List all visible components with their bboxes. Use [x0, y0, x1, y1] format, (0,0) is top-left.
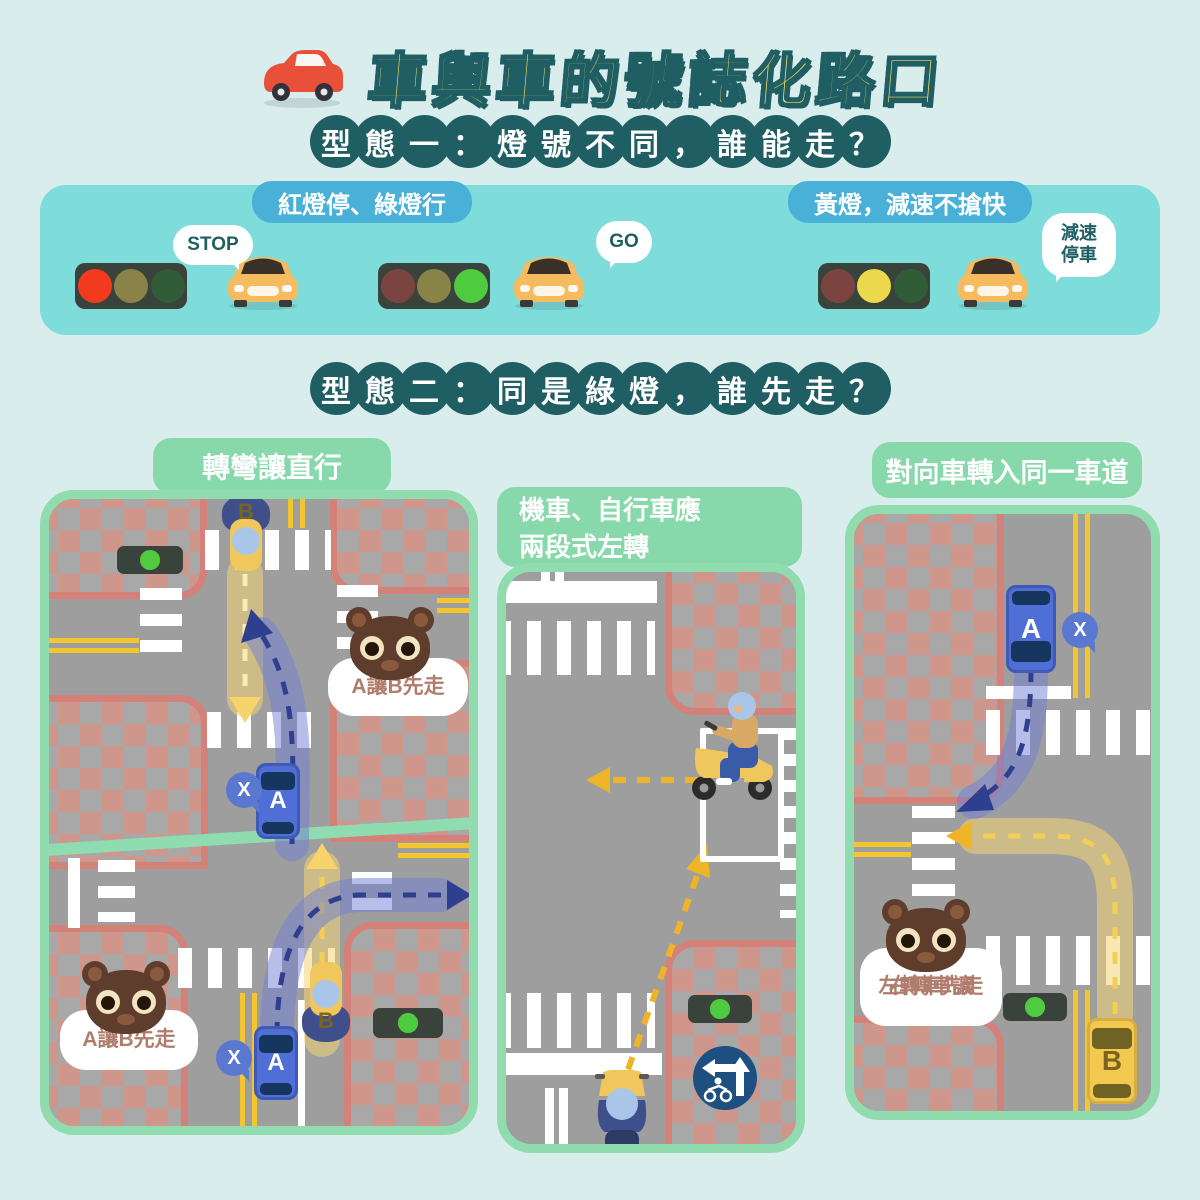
traffic-light-green: [373, 1008, 443, 1038]
traffic-light-red: [75, 263, 187, 309]
car-front-go: [508, 245, 590, 311]
scooter-rider: [676, 690, 784, 802]
heading-type2: 型態二：同是綠燈，誰先走？: [0, 362, 1200, 415]
bear-mascot: [350, 616, 430, 680]
panel-header-turn-yield: 轉彎讓直行: [153, 438, 391, 494]
car-a-label: A: [1006, 585, 1056, 673]
car-front-slow: [952, 245, 1034, 311]
car-a: A: [254, 1026, 298, 1100]
signal-rules-banner: 紅燈停、綠燈行 黃燈，減速不搶快 STOP: [40, 185, 1160, 335]
scooter-b-label: B: [220, 499, 272, 525]
slow-down-bubble: 減速 停車: [1042, 213, 1116, 277]
traffic-light-yellow: [818, 263, 930, 309]
stop-bubble: STOP: [173, 225, 253, 265]
no-go-badge: X: [216, 1040, 252, 1076]
bear-mascot: [886, 908, 966, 972]
infographic-page: 車與車的號誌化路口 型態一：燈號不同，誰能走？ 紅燈停、綠燈行 黃燈，減速不搶快…: [0, 0, 1200, 1200]
two-stage-left-turn-sign: [693, 1046, 757, 1110]
scooter-b-label: B: [300, 1008, 352, 1034]
heading-char: ？: [838, 115, 891, 168]
no-go-badge: X: [1062, 612, 1098, 648]
title-row: 車與車的號誌化路口: [0, 34, 1200, 118]
panel-turn-yield: B A X A讓B先走 A X B A讓B先走: [40, 490, 478, 1135]
car-a-label: A: [254, 1026, 298, 1100]
banner-label-yellow: 黃燈，減速不搶快: [788, 181, 1032, 223]
car-a: A: [1006, 585, 1056, 673]
car-a: A: [256, 763, 300, 839]
go-bubble: GO: [596, 221, 652, 263]
bear-mascot: [86, 970, 166, 1034]
panel-two-stage: [497, 563, 805, 1153]
car-b: B: [1087, 1018, 1137, 1104]
red-car-icon: [254, 41, 349, 111]
heading-char: ？: [838, 362, 891, 415]
banner-label-red-green: 紅燈停、綠燈行: [252, 181, 472, 223]
page-title: 車與車的號誌化路口: [366, 34, 949, 118]
panel-oncoming: A X B 右轉車讓 左轉車先走: [845, 505, 1160, 1120]
traffic-light-green: [378, 263, 490, 309]
traffic-light-green: [688, 995, 752, 1023]
panel-header-two-stage: 機車、自行車應 兩段式左轉: [497, 487, 802, 567]
traffic-light-green: [1003, 993, 1067, 1021]
panel-header-oncoming: 對向車轉入同一車道: [872, 442, 1142, 498]
scooter-rider-rear: [593, 1070, 651, 1153]
heading-type1: 型態一：燈號不同，誰能走？: [0, 115, 1200, 168]
traffic-light-green: [117, 546, 183, 574]
car-b-label: B: [1087, 1018, 1137, 1104]
scooter-b: B: [220, 493, 272, 573]
car-a-label: A: [256, 763, 300, 839]
no-go-badge: X: [226, 772, 262, 808]
scooter-b: B: [300, 960, 352, 1042]
